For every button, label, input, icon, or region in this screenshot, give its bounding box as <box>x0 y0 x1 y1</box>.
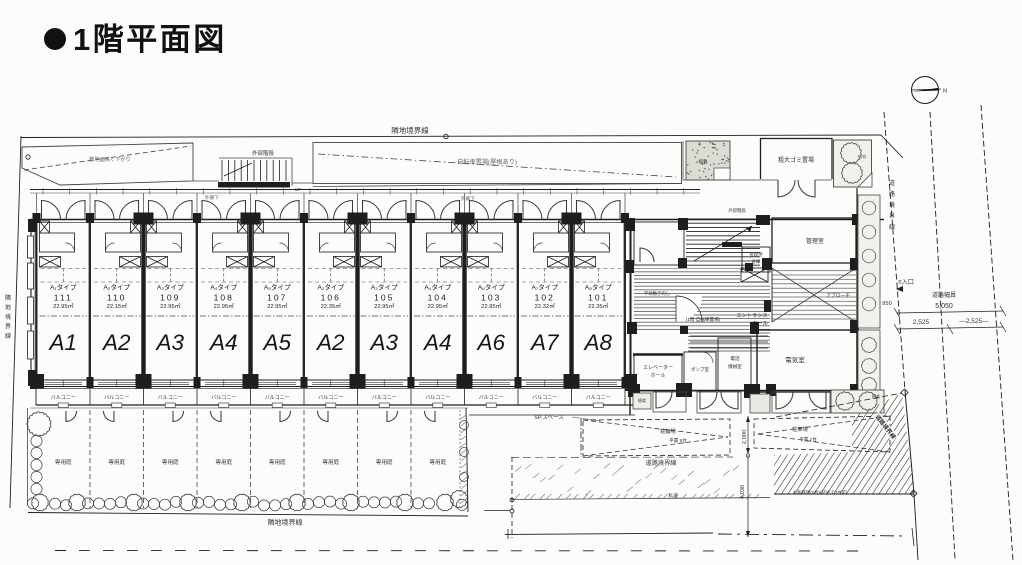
svg-text:専用庭: 専用庭 <box>215 458 232 466</box>
svg-text:バルコニー: バルコニー <box>318 395 343 401</box>
svg-text:バルコニー: バルコニー <box>158 395 183 401</box>
svg-text:バルコニー: バルコニー <box>532 395 557 401</box>
svg-text:107: 107 <box>267 293 287 303</box>
svg-text:私道: 私道 <box>668 492 678 499</box>
svg-text:平置 8台: 平置 8台 <box>669 437 687 444</box>
svg-text:植栽: 植栽 <box>638 397 646 403</box>
svg-text:界: 界 <box>889 213 895 220</box>
svg-text:22.35㎡: 22.35㎡ <box>588 302 609 310</box>
svg-text:バルコニー: バルコニー <box>104 395 129 401</box>
svg-text:地: 地 <box>5 304 11 312</box>
svg-text:2,000: 2,000 <box>742 430 748 445</box>
svg-text:22.95㎡: 22.95㎡ <box>214 302 235 310</box>
svg-text:お客様用(5台)(詰めて3台可): お客様用(5台)(詰めて3台可) <box>793 489 848 496</box>
svg-text:倉庫: 倉庫 <box>752 258 761 265</box>
svg-text:103: 103 <box>481 293 501 303</box>
svg-text:A₁タイプ: A₁タイプ <box>50 283 77 292</box>
svg-text:A₅タイプ: A₅タイプ <box>264 283 291 292</box>
svg-text:駐輪場: 駐輪場 <box>660 427 676 435</box>
svg-text:102: 102 <box>535 293 555 303</box>
svg-text:機械室: 機械室 <box>728 363 742 370</box>
svg-text:22.35㎡: 22.35㎡ <box>321 302 342 310</box>
svg-text:隣: 隣 <box>5 294 11 302</box>
svg-text:道路境界線: 道路境界線 <box>646 459 677 467</box>
svg-text:4,030: 4,030 <box>740 485 746 500</box>
svg-text:A1: A1 <box>47 330 77 355</box>
svg-text:線: 線 <box>889 223 895 231</box>
svg-text:エントランス: エントランス <box>736 312 767 319</box>
svg-text:電話: 電話 <box>730 355 740 362</box>
svg-text:専用庭: 専用庭 <box>429 458 446 466</box>
svg-text:22.95㎡: 22.95㎡ <box>374 302 395 310</box>
svg-text:108: 108 <box>214 293 234 303</box>
svg-text:22.15㎡: 22.15㎡ <box>107 302 128 310</box>
svg-text:101: 101 <box>588 293 608 303</box>
svg-text:駐車場: 駐車場 <box>792 425 808 433</box>
svg-text:専用庭: 専用庭 <box>108 458 125 466</box>
svg-text:専用庭: 専用庭 <box>322 458 339 466</box>
svg-text:道: 道 <box>889 179 895 187</box>
svg-text:電気室: 電気室 <box>785 355 805 364</box>
svg-text:A4: A4 <box>208 330 238 355</box>
svg-text:A₄タイプ: A₄タイプ <box>424 283 451 292</box>
svg-text:A₂タイプ: A₂タイプ <box>103 283 130 292</box>
svg-text:2,525: 2,525 <box>913 319 930 326</box>
svg-text:111: 111 <box>54 293 73 303</box>
svg-text:A5: A5 <box>261 330 291 355</box>
svg-text:105: 105 <box>374 293 394 303</box>
svg-text:≡入口: ≡入口 <box>898 279 914 286</box>
svg-text:バルコニー: バルコニー <box>211 395 236 401</box>
svg-text:平置 2台: 平置 2台 <box>799 436 817 443</box>
svg-text:路: 路 <box>889 190 895 198</box>
svg-text:104: 104 <box>428 293 448 303</box>
svg-text:22.95㎡: 22.95㎡ <box>267 302 288 310</box>
svg-text:106: 106 <box>321 293 341 303</box>
svg-text:A₄タイプ: A₄タイプ <box>210 283 237 292</box>
svg-text:SP.スペース: SP.スペース <box>534 414 564 421</box>
svg-text:ホール: ホール <box>650 373 665 379</box>
svg-text:専用庭: 専用庭 <box>162 458 179 466</box>
svg-text:ポンプ室: ポンプ室 <box>691 366 710 373</box>
svg-text:22.32㎡: 22.32㎡ <box>535 302 556 310</box>
svg-text:22.95㎡: 22.95㎡ <box>53 302 74 310</box>
svg-text:1階平面図: 1階平面図 <box>73 22 227 57</box>
svg-text:植栽: 植栽 <box>858 153 867 160</box>
svg-text:管理室: 管理室 <box>806 237 824 245</box>
svg-text:A₃タイプ: A₃タイプ <box>157 283 184 292</box>
svg-text:950: 950 <box>882 301 892 307</box>
svg-text:(1階 自転車置場): (1階 自転車置場) <box>686 316 721 323</box>
svg-text:A7: A7 <box>529 330 560 355</box>
svg-text:A₆タイプ: A₆タイプ <box>478 283 505 292</box>
svg-text:境: 境 <box>889 201 895 209</box>
svg-text:道路幅員: 道路幅員 <box>932 291 956 299</box>
svg-text:バルコニー: バルコニー <box>586 395 611 401</box>
svg-text:平场敷き均し: 平场敷き均し <box>644 290 670 297</box>
svg-text:N: N <box>943 89 947 95</box>
svg-text:A8: A8 <box>582 330 612 355</box>
svg-text:22.95㎡: 22.95㎡ <box>481 302 502 310</box>
svg-text:粗大ゴミ置場: 粗大ゴミ置場 <box>778 156 814 164</box>
svg-text:A₈タイプ: A₈タイプ <box>585 283 612 292</box>
svg-text:管理用: 管理用 <box>749 251 762 258</box>
svg-text:―2,525―: ―2,525― <box>959 318 989 325</box>
svg-text:バルコニー: バルコニー <box>51 395 76 401</box>
svg-text:外部階段: 外部階段 <box>252 149 275 157</box>
svg-text:22.95㎡: 22.95㎡ <box>428 302 449 310</box>
svg-text:隣地境界線: 隣地境界線 <box>268 518 303 527</box>
svg-text:5,050: 5,050 <box>935 303 953 310</box>
svg-text:植栽: 植栽 <box>699 158 708 165</box>
svg-text:線: 線 <box>5 332 11 340</box>
svg-text:敷地面高く下がり: 敷地面高く下がり <box>89 155 131 163</box>
svg-text:バルコニー: バルコニー <box>425 395 450 401</box>
svg-text:A4: A4 <box>422 330 452 355</box>
svg-text:22.95㎡: 22.95㎡ <box>160 302 181 310</box>
svg-text:外廊下: 外廊下 <box>205 194 220 201</box>
svg-text:隣地境界線: 隣地境界線 <box>391 125 429 135</box>
svg-text:110: 110 <box>107 293 127 303</box>
svg-text:境: 境 <box>5 313 11 321</box>
svg-text:A2: A2 <box>101 330 131 355</box>
svg-text:A₇タイプ: A₇タイプ <box>532 283 559 292</box>
svg-text:A₃タイプ: A₃タイプ <box>371 283 398 292</box>
svg-text:界: 界 <box>5 324 11 331</box>
svg-text:専用庭: 専用庭 <box>376 458 393 466</box>
svg-text:109: 109 <box>160 293 180 303</box>
svg-text:A6: A6 <box>475 330 505 355</box>
svg-text:専用庭: 専用庭 <box>55 458 72 466</box>
svg-text:A2: A2 <box>315 330 345 355</box>
svg-text:A₂タイプ: A₂タイプ <box>317 283 344 292</box>
svg-text:A3: A3 <box>154 330 184 355</box>
svg-text:専用庭: 専用庭 <box>269 458 286 466</box>
svg-text:外部階段: 外部階段 <box>728 207 746 214</box>
svg-text:バルコニー: バルコニー <box>479 395 504 401</box>
svg-text:自転車置場(屋根あり): 自転車置場(屋根あり) <box>457 158 517 166</box>
svg-text:バルコニー: バルコニー <box>265 395 290 401</box>
svg-text:エレベーター: エレベーター <box>643 364 673 371</box>
svg-text:アプローチ: アプローチ <box>826 293 850 299</box>
svg-text:A3: A3 <box>368 330 398 355</box>
svg-text:バルコニー: バルコニー <box>372 395 397 401</box>
